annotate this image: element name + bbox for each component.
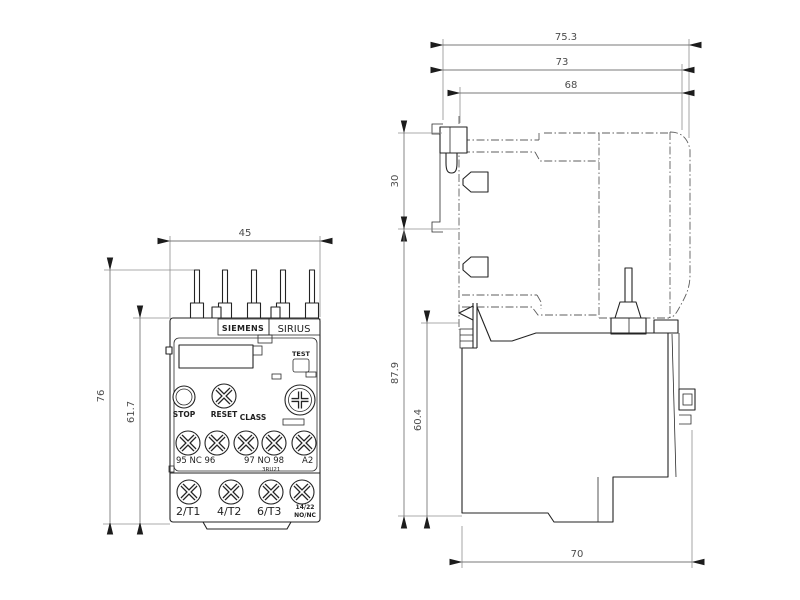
front-view: 45 76 61.7 xyxy=(96,228,320,529)
dim-top-offset-value: 30 xyxy=(390,175,401,188)
screw-terminal-icon xyxy=(259,480,283,504)
type-label: 3RU21 xyxy=(262,467,280,473)
dimension-drawing: 45 76 61.7 xyxy=(0,0,800,600)
adjustment-screw xyxy=(285,385,315,415)
side-dimensions: 75.3 73 68 30 87.9 60.4 70 xyxy=(390,32,692,568)
series-label: SIRIUS xyxy=(278,324,311,335)
adjustment-screw-side xyxy=(679,389,695,410)
aux-row-left-label: 95 NC 96 xyxy=(176,456,215,466)
connection-pin-side xyxy=(625,268,632,302)
front-bracket xyxy=(460,329,473,348)
test-label: TEST xyxy=(292,350,311,358)
screw-terminal-icon xyxy=(292,431,316,455)
relay-body-outline xyxy=(462,303,668,522)
contactor-outline xyxy=(459,116,690,330)
screw-terminal-icon xyxy=(205,431,229,455)
bottom-tab xyxy=(203,522,291,529)
dim-overall-height-side-value: 87.9 xyxy=(390,362,401,384)
dim-overall-depth-value: 75.3 xyxy=(555,32,577,43)
front-device: SIEMENS SIRIUS TEST STOP RESET CLASS xyxy=(166,270,320,529)
class-label: CLASS xyxy=(240,413,267,422)
main-t3-label: 6/T3 xyxy=(257,505,281,518)
screw-terminal-icon xyxy=(177,480,201,504)
side-notch xyxy=(166,347,172,354)
screw-terminal-icon xyxy=(262,431,286,455)
fixing-clip-lower xyxy=(463,257,488,277)
reset-label: RESET xyxy=(211,410,238,419)
mounting-bracket xyxy=(440,127,467,153)
screw-terminal-icon xyxy=(219,480,243,504)
aux-row-mid-label: 97 NO 98 xyxy=(244,456,284,466)
aux-row-right-label: A2 xyxy=(302,456,313,466)
screw-terminal-icon xyxy=(234,431,258,455)
dim-overall-height-value: 76 xyxy=(96,390,107,403)
setting-dial-slot xyxy=(179,345,253,368)
connection-pins xyxy=(191,270,319,318)
pin-icon xyxy=(306,270,319,318)
dim-bottom-depth-value: 70 xyxy=(571,549,584,560)
snap-hook xyxy=(446,153,457,173)
relay-side xyxy=(440,127,695,522)
reset-button xyxy=(212,384,236,408)
dim-body-height-value: 61.7 xyxy=(126,401,137,423)
main-t1-label: 2/T1 xyxy=(176,505,200,518)
dim-mid-depth-value: 73 xyxy=(556,57,569,68)
main-t2-label: 4/T2 xyxy=(217,505,241,518)
side-view: 75.3 73 68 30 87.9 60.4 70 xyxy=(390,32,695,568)
dimension-drawing-page: 45 76 61.7 xyxy=(0,0,800,600)
pin-icon xyxy=(191,270,204,318)
aux-contact-top-label: 14/22 xyxy=(296,504,315,511)
brand-label: SIEMENS xyxy=(222,324,264,333)
dim-width-value: 45 xyxy=(239,228,252,239)
front-snap-hook xyxy=(459,306,473,320)
screw-terminal-icon xyxy=(290,480,314,504)
pin-icon xyxy=(248,270,261,318)
dim-body-height-side-value: 60.4 xyxy=(413,409,424,431)
dim-inner-depth-value: 68 xyxy=(565,80,578,91)
stop-label: STOP xyxy=(173,410,196,419)
screw-terminal-icon xyxy=(176,431,200,455)
aux-contact-bottom-label: NO/NC xyxy=(294,512,316,519)
fixing-clip-upper xyxy=(463,172,488,192)
stop-button xyxy=(173,386,195,408)
